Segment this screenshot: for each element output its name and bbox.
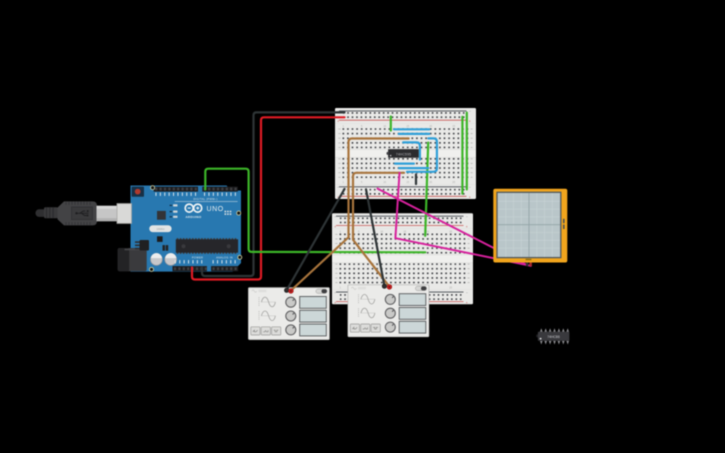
svg-text:74HC595: 74HC595 [396, 152, 411, 156]
svg-text:16MHz: 16MHz [156, 227, 165, 231]
svg-text:74HC86: 74HC86 [547, 335, 560, 339]
svg-text:UNO: UNO [207, 206, 224, 213]
svg-text:DIGITAL (PWM~): DIGITAL (PWM~) [193, 197, 217, 201]
svg-text:ARDUINO: ARDUINO [185, 215, 201, 219]
svg-text:POWER: POWER [192, 255, 203, 259]
svg-text:ANALOG IN: ANALOG IN [216, 256, 233, 260]
